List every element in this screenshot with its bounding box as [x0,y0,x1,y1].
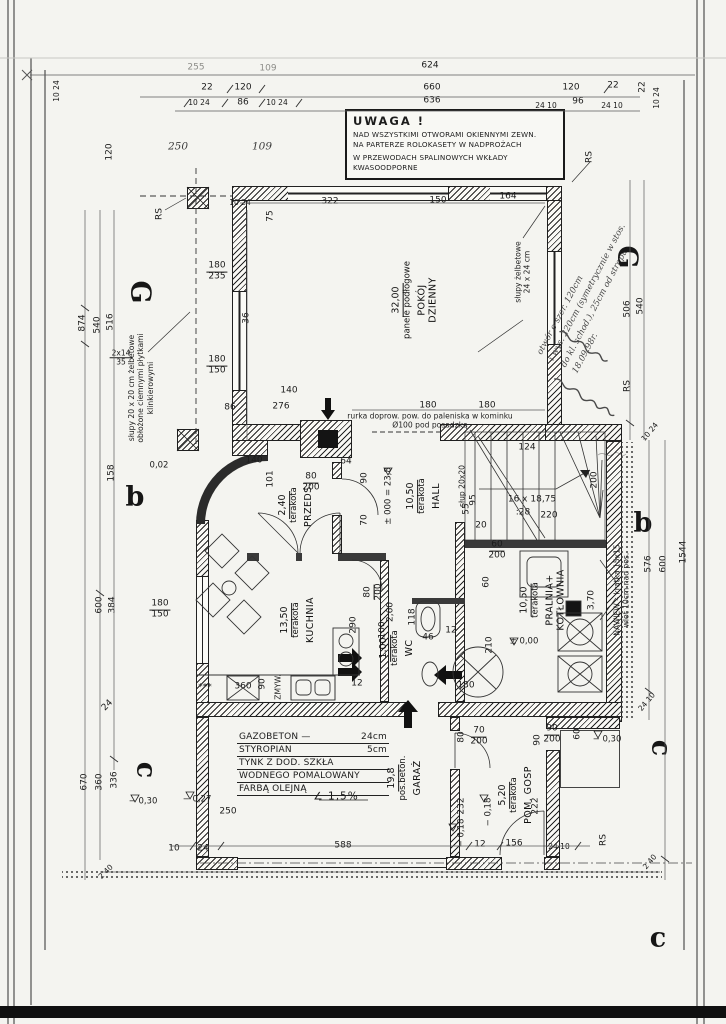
dimension-label: 10 24 [229,199,250,207]
wall [547,200,562,252]
dimension-label: 60200 [486,541,507,562]
dimension-label: 10 24 [53,80,61,101]
dimension-label: 86 [237,98,248,107]
marker-label: RS [585,151,594,163]
dimension-label: 12 [351,679,362,688]
annotation-label: rurka doprow. pow. do paleniska w komink… [347,412,512,431]
marker-label: RS [155,208,164,220]
dimension-label: 24 10 [548,843,569,851]
dimension-label: ∠ 1,5% [313,791,358,802]
annotation-label: słupy żelbetowe24 x 24 cm [514,241,533,302]
dimension-label: 164 [499,192,516,201]
dimension-label: 210 [485,636,494,653]
window [288,186,449,201]
dimension-label: 874 [78,314,87,331]
dimension-label: 2,60 [386,602,395,622]
dimension-label: *** [198,683,212,692]
dimension-label: 660 [423,83,440,92]
scan-edge-band [0,1006,726,1018]
materials-row: GAZOBETON —24cm [237,731,389,744]
dimension-label: 540 [93,316,102,333]
dimension-label: 255 [187,63,204,72]
uwaga-line: W PRZEWODACH SPALINOWYCH WKŁADY [353,153,557,163]
partition [332,515,342,554]
dimension-label: 80200 [364,581,385,602]
vent-arrow-right [338,648,362,668]
dimension-label: 130 [457,681,474,690]
dimension-label: 180 [419,401,436,410]
annotation-label: ZMYW. [273,674,282,699]
wall [546,750,560,857]
dimension-label: 360 [234,682,251,691]
dimension-label: 70 [360,514,369,525]
dimension-label: 276 [272,402,289,411]
dimension-label: 250 [219,807,236,816]
dimension-label: 10 24 [266,99,287,107]
dimension-label: 90200 [541,725,562,746]
dimension-label: 232 [457,797,466,814]
marker-label: RS [623,380,632,392]
room-label: 32,00panele podłogowePOKÓJ DZIENNY [392,259,439,341]
dimension-label: 12 [474,840,485,849]
room-label: 1,00terakotaWC [379,628,415,668]
dimension-label: 2 40 [97,863,114,880]
dimension-label: 140 [280,386,297,395]
dimension-label: 24 10 [535,102,556,110]
dimension-label: 10 24 [188,99,209,107]
materials-row: STYROPIAN5cm [237,744,389,757]
dimension-label: 24 10 [637,691,657,713]
annotation-label: słupy 20 x 20 cm żelbetoweobłożone ciemn… [127,333,155,442]
window [232,292,247,390]
annotation-label: NAWIEW – kratka 15x15wlot 10cm nad pos. [613,544,632,635]
section-marker: G [612,245,643,268]
dimension-label: 600 [95,596,104,613]
dimension-label: 180150 [206,356,227,377]
air-arrow-down [321,398,335,420]
dimension-label: 60 [482,576,491,587]
wall [544,857,560,870]
dimension-label: 384 [108,596,117,613]
materials-row: TYNK Z DOD. SZKŁA [237,757,389,770]
dimension-label: 636 [423,96,440,105]
section-marker: b [634,508,653,539]
dimension-label: 80 [457,731,466,742]
dimension-label: 10 [168,844,179,853]
ground-band [62,868,662,879]
dimension-label: 3,70 [587,590,596,610]
wall [232,440,268,456]
dimension-label: 158 [107,464,116,481]
partition [296,553,302,561]
dimension-label: − 0,18 [458,819,467,848]
dimension-label: 118 [408,608,417,625]
dimension-label: 10 24 [640,421,660,443]
dimension-label: ± 000 = 23,8 [385,467,394,525]
uwaga-title: UWAGA ! [353,114,557,128]
room-label: 5,20terakotaPOM. GOSP [498,766,534,824]
dimension-label: 516 [106,313,115,330]
dimension-label: 2 40 [642,853,659,871]
dimension-label: 90 [360,472,369,483]
dimension-label: 22 [607,81,618,90]
dimension-label: 120 [234,83,251,92]
dimension-label: :28 [516,508,530,517]
dimension-label: − 0,30 [129,798,158,807]
wall [196,857,238,870]
dimension-label: 360 [95,773,104,790]
dimension-label: 180 [478,401,495,410]
dimension-label: 120 [105,143,114,160]
section-marker: c [131,762,162,778]
annotation-label: słup 20x20 [457,465,466,507]
dimension-label: 180150 [149,600,170,621]
dimension-label: − 0,30 [593,736,622,745]
window [196,577,209,663]
fireplace [300,420,352,458]
uwaga-line: KWASOODPORNE [353,163,557,173]
dimension-label: 24 [101,699,116,714]
uwaga-line: NAD WSZYSTKIMI OTWORAMI OKIENNYMI ZEWN. [353,130,557,140]
wall [196,520,209,577]
wall [448,186,491,201]
garage-door [238,858,446,868]
dimension-label: 220 [540,511,557,520]
wall [232,200,247,292]
dimension-label: − 0,18 [485,798,494,827]
dimension-label: 180235 [206,262,227,283]
materials-note: GAZOBETON —24cmSTYROPIAN5cmTYNK Z DOD. S… [237,731,389,796]
wall [232,424,302,441]
dimension-label: 588 [334,841,351,850]
partition [455,522,465,702]
dimension-label: 670 [80,773,89,790]
section-marker: c [650,923,666,954]
wall [438,702,622,717]
dimension-label: 20 [475,521,486,530]
dimension-label: 0,02 [150,462,169,471]
partition [247,553,259,561]
dimension-label: 90 [258,678,267,689]
dimension-label: 70200 [468,727,489,748]
section-marker: G [125,280,156,303]
dimension-label: 109 [259,64,276,73]
materials-row: WODNEGO POMALOWANY [237,770,389,783]
room-label: 19,8pos.beton.GARAŻ [387,754,423,803]
column-rs [177,429,199,451]
dimension-label: 1544 [679,541,688,564]
room-label: 2,40terakotaPRZEDS. [278,483,314,527]
dimension-label: 86 [224,403,235,412]
dimension-label: 96 [572,97,583,106]
room-label: 10,50terakotaPRALNIA+ KOTŁOWNIA [520,569,567,630]
column-rs [187,187,209,209]
dimension-label: 290 [349,616,358,633]
dimension-label: 250 [168,141,188,152]
uwaga-line: NA PARTERZE ROLOKASETY W NADPROŻACH [353,140,557,150]
dimension-label: 600 [659,555,668,572]
dimension-label: 624 [421,61,438,70]
dimension-label: 12 [445,626,456,635]
dimension-label: 36 [242,312,251,323]
dimension-label: 150 [429,196,446,205]
dimension-label: 156 [505,839,522,848]
section-marker: b [126,482,145,513]
dimension-label: 101 [266,470,275,487]
dimension-label: 120 [562,83,579,92]
wall [196,717,209,857]
uwaga-note-box: UWAGA ! NAD WSZYSTKIMI OTWORAMI OKIENNYM… [345,109,565,180]
partition [450,717,460,731]
wall [545,424,622,441]
dimension-label: 109 [252,141,272,152]
room-label: 13,50terakotaKUCHNIA [280,597,316,643]
dimension-label: 60 [573,728,582,739]
dimension-label: ± 0,00 [510,638,539,647]
leader-lines [148,162,616,620]
dimension-label: 24 10 [601,102,622,110]
section-marker: c [646,740,677,756]
floor-plan-scan: UWAGA ! NAD WSZYSTKIMI OTWORAMI OKIENNYM… [0,0,726,1024]
dimension-label: 124 [518,443,535,452]
dimension-label: 576 [644,555,653,572]
wall [446,857,502,870]
dimension-label: − 0,27 [183,796,212,805]
room-label: 10,50terakotaHALL [406,476,442,516]
dimension-label: 322 [321,197,338,206]
dimension-label: 10 24 [653,87,661,108]
dimension-label: 16 x 18,75 [508,495,556,504]
dimension-label: 22 [201,83,212,92]
dimension-label: 22 [638,81,647,92]
dimension-label: 24 [197,844,208,853]
wall [196,702,408,717]
dimension-label: 64 [340,457,351,466]
dimension-label: 200 [590,471,599,488]
dimension-label: 46 [422,633,433,642]
dimension-label: 506 [623,300,632,317]
marker-label: RS [599,834,608,846]
dimension-label: 140 [245,456,262,465]
dimension-label: 75 [266,210,275,221]
dimension-label: 540 [636,297,645,314]
partition [412,598,465,604]
partition [338,553,386,561]
dimension-label: 336 [110,771,119,788]
wall [546,186,562,201]
